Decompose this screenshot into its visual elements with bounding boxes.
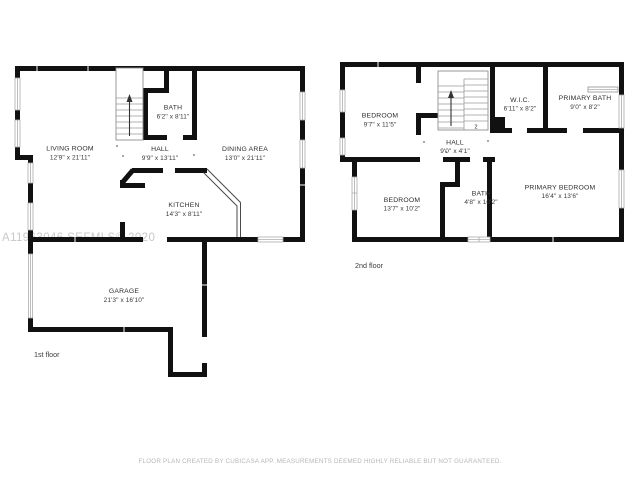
room-dims: 21'3" x 16'10" bbox=[104, 297, 145, 304]
staircase-2nd-floor: 2 bbox=[438, 71, 488, 131]
first-floor-plan: LIVING ROOM 12'9" x 21'11" BATH 6'2" x 8… bbox=[15, 66, 305, 377]
room-name: LIVING ROOM bbox=[46, 146, 94, 153]
room-label-dining-area: DINING AREA 13'0" x 21'11" bbox=[222, 146, 268, 162]
staircase-1st-floor bbox=[116, 68, 143, 140]
floor-label-2nd: 2nd floor bbox=[355, 261, 384, 270]
shower-glass bbox=[588, 87, 618, 92]
room-dims: 9'9" x 13'11" bbox=[142, 155, 179, 162]
room-dims: 9'0" x 8'2" bbox=[570, 104, 600, 111]
room-dims: 6'11" x 8'2" bbox=[504, 106, 537, 113]
room-label-hall-1st: HALL 9'9" x 13'11" bbox=[142, 146, 179, 162]
floorplan-svg: A11963046 SEFMLS© 2020 bbox=[0, 0, 640, 480]
room-label-bedroom-lower: BEDROOM 13'7" x 10'2" bbox=[384, 197, 422, 213]
garage-door bbox=[29, 254, 33, 318]
room-dims: 9'0" x 4'1" bbox=[440, 148, 470, 155]
room-name: KITCHEN bbox=[168, 202, 199, 209]
room-label-hall-2nd: HALL 9'0" x 4'1" bbox=[440, 140, 470, 156]
room-name: DINING AREA bbox=[222, 146, 268, 153]
room-dims: 12'9" x 21'11" bbox=[50, 155, 91, 162]
room-name: BATH bbox=[164, 105, 182, 112]
room-label-garage: GARAGE 21'3" x 16'10" bbox=[104, 288, 145, 304]
room-name: PRIMARY BATH bbox=[559, 95, 612, 102]
room-label-kitchen: KITCHEN 14'3" x 8'11" bbox=[166, 202, 203, 218]
room-name: BATH bbox=[472, 191, 490, 198]
room-name: GARAGE bbox=[109, 288, 140, 295]
floor-label-1st: 1st floor bbox=[34, 350, 60, 359]
room-label-primary-bath: PRIMARY BATH 9'0" x 8'2" bbox=[559, 95, 612, 111]
room-label-living-room: LIVING ROOM 12'9" x 21'11" bbox=[46, 146, 94, 162]
second-floor-plan: 2 BEDROOM 9'7" x 11'5" W.I.C. 6'11" x 8'… bbox=[340, 62, 624, 270]
room-label-primary-bedroom: PRIMARY BEDROOM 16'4" x 13'6" bbox=[525, 185, 596, 201]
room-name: HALL bbox=[446, 140, 464, 147]
room-dims: 6'2" x 8'11" bbox=[157, 114, 190, 121]
room-dims: 16'4" x 13'6" bbox=[542, 193, 580, 200]
room-dims: 14'3" x 8'11" bbox=[166, 211, 203, 218]
room-label-bedroom-upper: BEDROOM 9'7" x 11'5" bbox=[362, 113, 399, 129]
room-dims: 13'7" x 10'2" bbox=[384, 206, 422, 213]
room-dims: 9'7" x 11'5" bbox=[364, 122, 397, 129]
room-label-bath-1st: BATH 6'2" x 8'11" bbox=[157, 105, 190, 121]
room-dims: 13'0" x 21'11" bbox=[225, 155, 266, 162]
room-name: BEDROOM bbox=[362, 113, 399, 120]
disclaimer-text: FLOOR PLAN CREATED BY CUBICASA APP. MEAS… bbox=[138, 458, 501, 465]
kitchen-counter bbox=[204, 169, 241, 237]
room-name: W.I.C. bbox=[510, 97, 530, 104]
room-name: HALL bbox=[151, 146, 169, 153]
room-name: BEDROOM bbox=[384, 197, 421, 204]
room-name: PRIMARY BEDROOM bbox=[525, 185, 596, 192]
room-label-bath-2nd: BATH 4'8" x 10'2" bbox=[464, 191, 498, 207]
room-dims: 4'8" x 10'2" bbox=[464, 199, 498, 206]
floorplan-page: A11963046 SEFMLS© 2020 bbox=[0, 0, 640, 480]
room-label-wic: W.I.C. 6'11" x 8'2" bbox=[504, 97, 537, 113]
stair-flight-marker: 2 bbox=[474, 125, 477, 131]
